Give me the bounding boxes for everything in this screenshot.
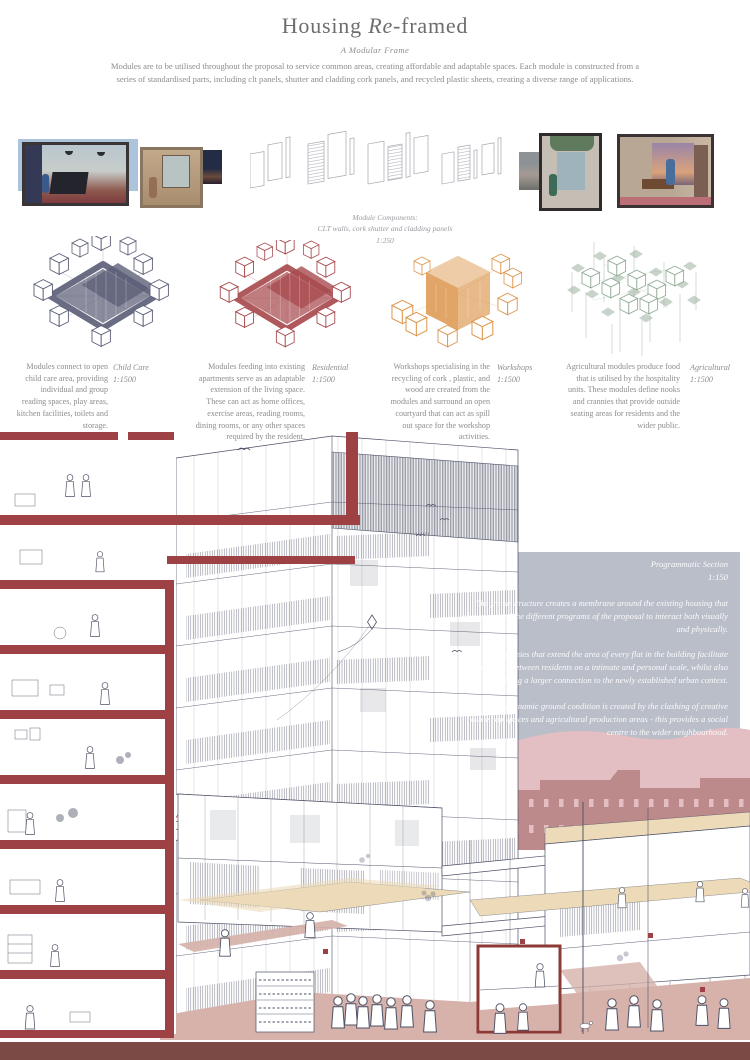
interior-render-dining bbox=[617, 134, 714, 208]
panel-para-2: The balconies that extend the area of ev… bbox=[458, 648, 728, 687]
bottom-ground-band bbox=[0, 1042, 750, 1060]
axon-agricultural bbox=[548, 228, 716, 366]
panel-para-1: The frame structure creates a membrane a… bbox=[458, 597, 728, 636]
child-care-description: Modules connect to open child care area,… bbox=[15, 361, 108, 431]
poster-board: Housing Re-framed A Modular Frame Module… bbox=[0, 0, 750, 1060]
agricultural-description: Agricultural modules produce food that i… bbox=[558, 361, 680, 431]
render-figure bbox=[549, 174, 557, 196]
module-components-drawing bbox=[250, 130, 512, 212]
balcony-render bbox=[539, 133, 602, 211]
interior-render-warm bbox=[140, 147, 203, 208]
render-opening bbox=[557, 152, 585, 190]
panel-scale: 1:150 bbox=[458, 571, 728, 584]
panel-para-3: A diverse and dynamic ground condition i… bbox=[458, 700, 728, 739]
child-care-label: Child Care1:1500 bbox=[113, 362, 163, 386]
panel-title: Programmatic Section bbox=[458, 558, 728, 571]
render-lamp bbox=[97, 152, 105, 156]
page-subtitle: A Modular Frame bbox=[0, 45, 750, 55]
render-wall bbox=[25, 145, 42, 203]
render-figure bbox=[666, 159, 675, 185]
programmatic-section-text: Programmatic Section 1:150 The frame str… bbox=[458, 558, 728, 752]
render-piano bbox=[49, 172, 88, 194]
render-figure bbox=[149, 177, 157, 198]
interior-render-piano bbox=[22, 142, 129, 206]
render-window bbox=[162, 155, 190, 188]
render-floor-strip bbox=[620, 197, 711, 205]
intro-paragraph: Modules are to be utilised throughout th… bbox=[104, 60, 646, 87]
axon-residential bbox=[212, 240, 362, 358]
bookshelf bbox=[256, 972, 314, 1032]
render-shelf bbox=[694, 145, 708, 197]
axon-child-care bbox=[28, 236, 178, 358]
residential-label: Residential1:1500 bbox=[312, 362, 362, 386]
agricultural-label: Agricultural1:1500 bbox=[690, 362, 742, 386]
workshops-label: Workshops1:1500 bbox=[497, 362, 547, 386]
render-lamp bbox=[65, 151, 73, 155]
axon-workshops bbox=[386, 246, 534, 358]
render-figure bbox=[42, 174, 49, 193]
page-title: Housing Re-framed bbox=[0, 13, 750, 39]
render-greenery bbox=[550, 136, 594, 151]
